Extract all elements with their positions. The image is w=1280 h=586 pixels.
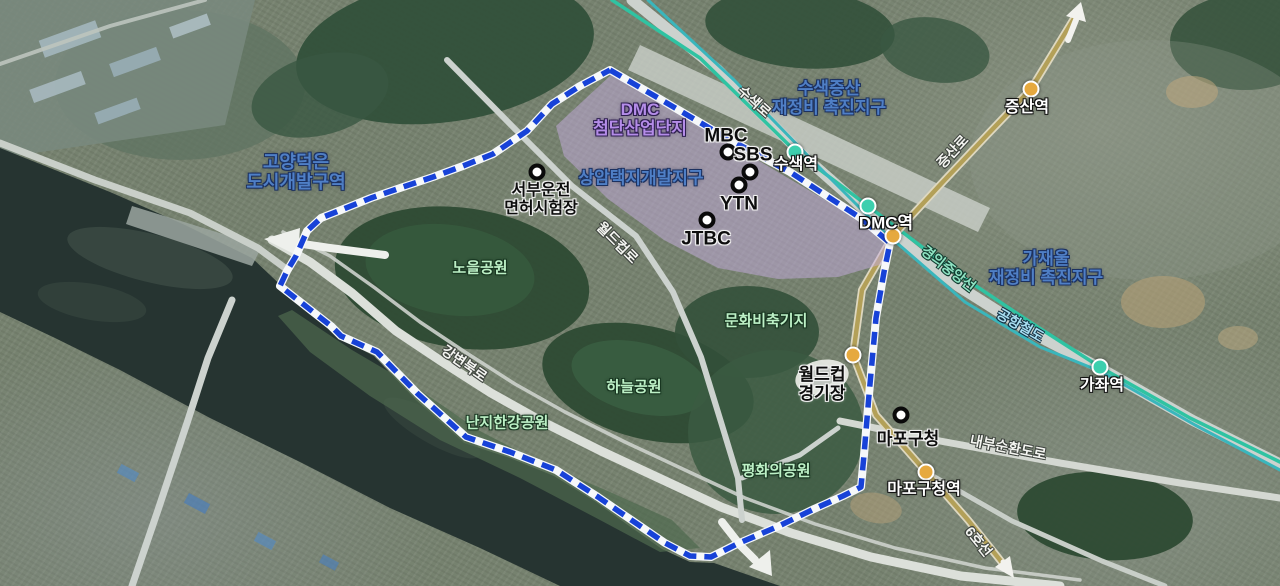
map-labels-layer: 고양덕은 도시개발구역상암택지개발지구수색증산 재정비 촉진지구가재울 재정비 … <box>0 0 1280 586</box>
label-pyeonghwa-park: 평화의공원 <box>741 464 810 481</box>
label-gajaeul-district: 가재울 재정비 촉진지구 <box>989 249 1103 287</box>
marker-driving-test-center <box>529 164 546 181</box>
satellite-map[interactable]: 고양덕은 도시개발구역상암택지개발지구수색증산 재정비 촉진지구가재울 재정비 … <box>0 0 1280 586</box>
label-goyang-deokeun-district: 고양덕은 도시개발구역 <box>246 152 345 192</box>
label-susaek-jeungsan-district: 수색증산 재정비 촉진지구 <box>772 79 886 117</box>
label-noeul-park: 노을공원 <box>452 261 507 278</box>
station-dmc-rail <box>860 198 877 215</box>
label-mapo-gu-office: 마포구청 <box>877 429 940 448</box>
station-worldcup-stadium <box>845 347 862 364</box>
label-oil-tank-culture-park: 문화비축기지 <box>725 314 808 331</box>
label-dmc-industrial-complex: DMC 첨단산업단지 <box>593 100 687 138</box>
label-jtbc: JTBC <box>681 228 731 249</box>
label-sangam-housing-district: 상암택지개발지구 <box>578 168 703 187</box>
label-nanji-hangang-park: 난지한강공원 <box>466 416 549 433</box>
label-sbs: SBS <box>733 144 772 165</box>
label-haneul-park: 하늘공원 <box>606 380 661 397</box>
label-inner-ring-road: 내부순환도로 <box>969 433 1048 463</box>
marker-mapo-gu-office <box>893 407 910 424</box>
label-gajwa-station: 가좌역 <box>1080 377 1124 395</box>
label-line6: 6호선 <box>961 524 994 560</box>
label-jeungsan-ro: 증산로 <box>934 133 972 172</box>
label-worldcup-ro: 월드컵로 <box>593 219 641 267</box>
label-airport-railroad: 공항철도 <box>994 306 1046 345</box>
marker-mbc <box>720 144 737 161</box>
label-gyeongui-jungang-line: 경의중앙선 <box>918 243 978 295</box>
marker-jtbc <box>699 212 716 229</box>
station-dmc-line6 <box>885 228 902 245</box>
station-mapo-gu-office <box>918 464 935 481</box>
label-worldcup-stadium: 월드컵 경기장 <box>799 365 846 403</box>
station-gajwa <box>1092 359 1109 376</box>
label-dmc-station: DMC역 <box>859 213 913 232</box>
station-susaek <box>787 144 804 161</box>
marker-sbs <box>742 164 759 181</box>
label-gangbyeon-expressway: 강변북로 <box>438 343 489 385</box>
label-driving-test-center: 서부운전 면허시험장 <box>504 182 578 218</box>
marker-ytn <box>731 177 748 194</box>
label-ytn: YTN <box>720 193 758 214</box>
station-jeungsan <box>1023 81 1040 98</box>
label-susaek-station: 수색역 <box>774 156 818 174</box>
label-jeungsan-station: 증산역 <box>1005 99 1049 117</box>
label-susaek-ro: 수색로 <box>734 83 773 121</box>
label-mbc: MBC <box>704 125 747 146</box>
label-mapo-gu-office-station: 마포구청역 <box>887 481 961 499</box>
